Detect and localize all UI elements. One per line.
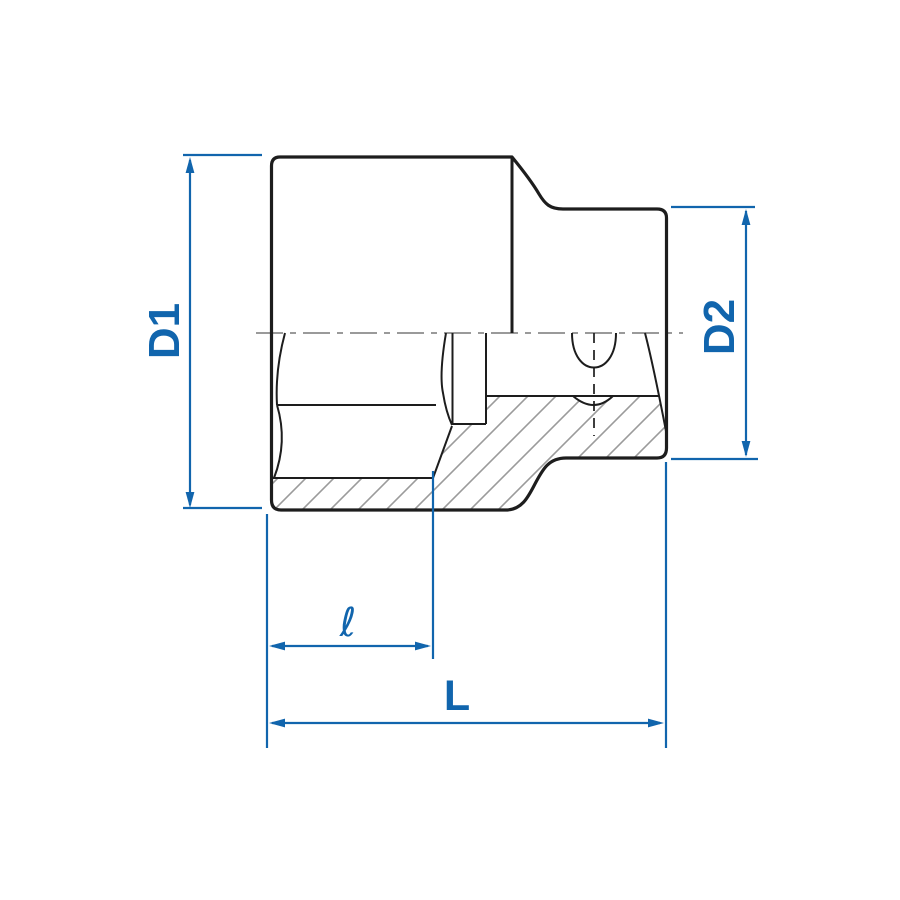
L-arrow-left xyxy=(269,719,285,728)
dimension-d1 xyxy=(183,155,262,508)
socket-dimension-diagram: D1 D2 ℓ L xyxy=(0,0,900,900)
hex-bore-lines xyxy=(273,333,452,478)
section-hatch-area xyxy=(272,396,667,510)
relief-bore-lines xyxy=(452,333,486,424)
d1-label: D1 xyxy=(140,303,189,359)
d2-arrow-up xyxy=(742,209,751,225)
d2-label: D2 xyxy=(695,299,744,355)
technical-drawing-canvas: D1 D2 ℓ L xyxy=(0,0,900,900)
overall-length-label: L xyxy=(444,672,470,720)
d1-arrow-down xyxy=(186,492,195,508)
d2-arrow-down xyxy=(742,441,751,457)
L-arrow-right xyxy=(648,719,664,728)
l-arrow-left xyxy=(269,642,285,651)
inner-depth-label: ℓ xyxy=(339,600,357,646)
l-arrow-right xyxy=(415,642,431,651)
d1-arrow-up xyxy=(186,157,195,173)
